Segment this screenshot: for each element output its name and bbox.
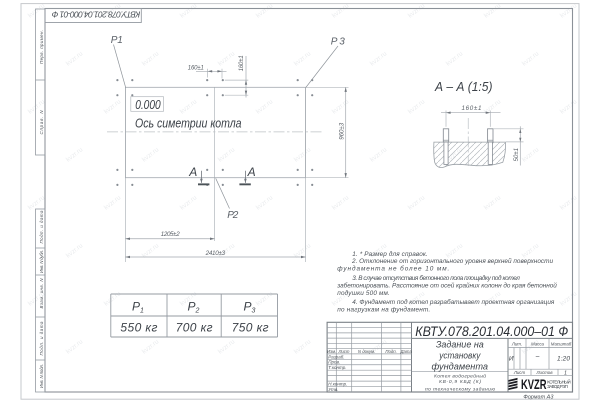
svg-text:160±1: 160±1 xyxy=(188,66,204,72)
svg-text:750 кг: 750 кг xyxy=(232,320,269,334)
svg-text:ЗАВОД РЭП: ЗАВОД РЭП xyxy=(547,384,568,389)
svg-text:Р1: Р1 xyxy=(111,35,123,46)
svg-text:Справ. N: Справ. N xyxy=(39,110,44,135)
svg-text:Перв. примен.: Перв. примен. xyxy=(39,30,44,64)
svg-text:И: И xyxy=(509,355,514,362)
svg-text:1:20: 1:20 xyxy=(557,355,570,362)
svg-text:1: 1 xyxy=(564,370,567,376)
svg-text:Р2: Р2 xyxy=(227,210,238,221)
svg-text:Котел водогрейный: Котел водогрейный xyxy=(434,372,486,379)
svg-text:Дата: Дата xyxy=(400,349,413,354)
svg-text:Масса: Масса xyxy=(531,341,545,346)
svg-text:Изм.: Изм. xyxy=(327,349,336,354)
svg-text:1205±2: 1205±2 xyxy=(161,231,181,238)
svg-text:Разраб.: Разраб. xyxy=(328,354,344,359)
svg-text:Листов: Листов xyxy=(536,370,554,375)
svg-text:Ось симетрии котла: Ось симетрии котла xyxy=(135,118,242,131)
svg-text:160±1: 160±1 xyxy=(462,105,482,112)
svg-text:Взам. инв. N: Взам. инв. N xyxy=(39,278,44,309)
svg-text:А – А (1:5): А – А (1:5) xyxy=(434,80,492,95)
svg-text:700 кг: 700 кг xyxy=(176,320,213,334)
svg-text:Инв. N дубл.: Инв. N дубл. xyxy=(39,250,44,273)
svg-text:4. Фундамент под котел разраб: 4. Фундамент под котел разрабатывает про… xyxy=(352,298,555,306)
svg-text:Инв. N подл.: Инв. N подл. xyxy=(39,364,44,388)
svg-text:2410±3: 2410±3 xyxy=(205,250,226,257)
svg-text:3. В случае отсутствия бетонн: 3. В случае отсутствия бетонного пола пл… xyxy=(352,274,520,282)
svg-text:1. * Размер для справок.: 1. * Размер для справок. xyxy=(352,250,428,258)
svg-text:160±1: 160±1 xyxy=(239,55,245,71)
svg-text:Задание на: Задание на xyxy=(436,339,484,349)
svg-text:подушки 500 мм.: подушки 500 мм. xyxy=(337,289,390,297)
svg-text:фундамента: фундамента xyxy=(432,361,489,371)
svg-text:Масштаб: Масштаб xyxy=(551,341,572,346)
svg-text:Н.контр.: Н.контр. xyxy=(328,382,347,387)
svg-text:50±1: 50±1 xyxy=(514,148,520,162)
svg-text:Лит.: Лит. xyxy=(511,341,522,346)
svg-text:А: А xyxy=(188,165,197,179)
svg-text:N докум.: N докум. xyxy=(358,349,375,354)
svg-text:КВТУ.078.201.04.000–01 Ф: КВТУ.078.201.04.000–01 Ф xyxy=(415,323,568,339)
svg-text:960±3: 960±3 xyxy=(338,122,345,140)
svg-text:Подп.: Подп. xyxy=(385,349,396,354)
svg-text:Пров.: Пров. xyxy=(328,360,340,365)
svg-text:по нагрузкам на фундамент.: по нагрузкам на фундамент. xyxy=(337,306,430,314)
svg-text:КВТУ.078.201.04.000-01 Ф: КВТУ.078.201.04.000-01 Ф xyxy=(51,10,140,20)
svg-text:550 кг: 550 кг xyxy=(120,320,157,334)
svg-text:забетонировать. Расстояние от: забетонировать. Расстояние от осей крайн… xyxy=(336,281,557,289)
svg-text:Т.контр.: Т.контр. xyxy=(328,365,346,370)
svg-text:по техническому заданию: по техническому заданию xyxy=(425,386,495,392)
svg-text:Подп. и дата: Подп. и дата xyxy=(39,321,44,356)
svg-text:Утв.: Утв. xyxy=(328,387,338,392)
svg-text:установку: установку xyxy=(438,350,481,361)
svg-text:–: – xyxy=(535,354,540,361)
svg-text:Лист: Лист xyxy=(513,370,526,375)
svg-text:Формат А3: Формат А3 xyxy=(523,394,554,400)
svg-text:Лист: Лист xyxy=(337,349,349,354)
svg-text:Подп. и дата: Подп. и дата xyxy=(39,210,44,244)
svg-text:KVZR: KVZR xyxy=(521,376,547,392)
svg-text:2. Отклонение от горизонтальн: 2. Отклонение от горизонтального уровня … xyxy=(351,257,553,265)
svg-text:фундамента не более 10 мм.: фундамента не более 10 мм. xyxy=(337,264,449,272)
svg-text:0.000: 0.000 xyxy=(135,99,161,112)
svg-text:А: А xyxy=(247,165,256,179)
svg-text:КВ-0,9 КБД (К): КВ-0,9 КБД (К) xyxy=(439,379,481,385)
